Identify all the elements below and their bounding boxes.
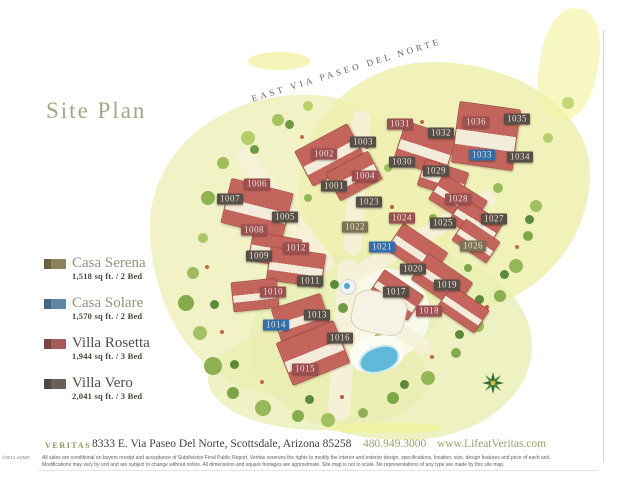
lot-label-1035: 1035	[504, 114, 530, 125]
legend-item: Villa Vero 2,041 sq ft. / 3 Bed	[44, 375, 174, 401]
legend-item: Villa Rosetta 1,944 sq ft. / 3 Bed	[44, 335, 174, 361]
lot-label-1017: 1017	[383, 287, 409, 298]
lot-label-1021: 1021	[369, 242, 395, 253]
lot-label-1033: 1033	[469, 150, 495, 161]
copyright-text: ©2012 ADMR	[2, 455, 40, 460]
page-title: Site Plan	[46, 98, 146, 124]
lot-label-1034: 1034	[507, 152, 533, 163]
lot-label-1008: 1008	[241, 225, 267, 236]
lot-number: 1012	[286, 243, 306, 253]
lot-number: 1004	[355, 171, 375, 181]
lot-number: 1005	[275, 212, 295, 222]
lot-number: 1017	[386, 287, 406, 297]
lot-label-1010: 1010	[260, 287, 286, 298]
lot-number: 1034	[510, 152, 530, 162]
legend-model-name: Casa Solare	[72, 295, 174, 311]
street-label: EAST VIA PASEO DEL NORTE	[250, 42, 421, 103]
lot-number: 1003	[353, 137, 373, 147]
lot-number: 1035	[507, 114, 527, 124]
lot-label-1007: 1007	[217, 194, 243, 205]
lot-label-1030: 1030	[389, 157, 415, 168]
lot-number: 1033	[472, 150, 492, 160]
lot-number: 1020	[403, 264, 423, 274]
veritas-logo: VERITAS	[45, 441, 91, 450]
lot-label-1002: 1002	[311, 149, 337, 160]
legend-model-name: Casa Serena	[72, 255, 174, 271]
lot-label-1004: 1004	[352, 171, 378, 182]
lot-number: 1019	[437, 280, 457, 290]
site-plan-page: 1001 1002 1003 1004 1005 1006 1007 1008 …	[0, 0, 621, 480]
lot-label-1024: 1024	[389, 213, 415, 224]
lot-number: 1018	[419, 306, 439, 316]
disclaimer-text: All sales are conditional on buyers rece…	[42, 455, 564, 468]
legend-item: Casa Serena 1,518 sq ft. / 2 Bed	[44, 255, 174, 281]
lot-number: 1009	[249, 251, 269, 261]
lot-number: 1006	[247, 179, 267, 189]
watercolor-wash	[248, 52, 310, 70]
lot-label-1013: 1013	[304, 310, 330, 321]
lot-number: 1024	[392, 213, 412, 223]
lot-label-1028: 1028	[445, 194, 471, 205]
lot-label-1025: 1025	[430, 218, 456, 229]
legend-model-name: Villa Rosetta	[72, 335, 174, 351]
lot-label-1023: 1023	[356, 197, 382, 208]
legend-model-details: 1,570 sq ft. / 2 Bed	[72, 311, 174, 321]
legend-color-swatch	[44, 379, 66, 389]
lot-number: 1030	[392, 157, 412, 167]
lot-label-1020: 1020	[400, 264, 426, 275]
lot-label-1029: 1029	[423, 166, 449, 177]
lot-label-1015: 1015	[292, 364, 318, 375]
lot-number: 1023	[359, 197, 379, 207]
footer-address: 8333 E. Via Paseo Del Norte, Scottsdale,…	[92, 438, 351, 450]
watercolor-wash	[330, 423, 442, 433]
lot-label-1031: 1031	[387, 119, 413, 130]
lot-number: 1011	[300, 276, 320, 286]
scan-edge-line	[603, 30, 604, 462]
compass-icon	[482, 372, 504, 394]
lot-label-1027: 1027	[481, 214, 507, 225]
legend-item: Casa Solare 1,570 sq ft. / 2 Bed	[44, 295, 174, 321]
watercolor-wash	[531, 4, 608, 124]
lot-label-1012: 1012	[283, 243, 309, 254]
flower-accents	[0, 0, 4, 4]
lot-label-1009: 1009	[246, 251, 272, 262]
lot-number: 1027	[484, 214, 504, 224]
lot-label-1006: 1006	[244, 179, 270, 190]
legend-model-name: Villa Vero	[72, 375, 174, 391]
footer-website[interactable]: www.LifeatVeritas.com	[437, 438, 546, 450]
lot-label-1011: 1011	[297, 276, 323, 287]
lot-number: 1032	[431, 128, 451, 138]
legend-model-details: 1,944 sq ft. / 3 Bed	[72, 351, 174, 361]
lot-number: 1028	[448, 194, 468, 204]
lot-number: 1025	[433, 218, 453, 228]
legend-model-details: 1,518 sq ft. / 2 Bed	[72, 271, 174, 281]
legend-color-swatch	[44, 339, 66, 349]
lot-number: 1016	[330, 333, 350, 343]
lot-number: 1015	[295, 364, 315, 374]
lot-number: 1008	[244, 225, 264, 235]
lot-label-1026: 1026	[460, 241, 486, 252]
legend-color-swatch	[44, 299, 66, 309]
lot-label-1032: 1032	[428, 128, 454, 139]
lot-number: 1031	[390, 119, 410, 129]
lot-number: 1026	[463, 241, 483, 251]
lot-number: 1010	[263, 287, 283, 297]
lot-label-1036: 1036	[463, 117, 489, 128]
lot-label-1019: 1019	[434, 280, 460, 291]
legend: Casa Serena 1,518 sq ft. / 2 Bed Casa So…	[44, 255, 174, 415]
lot-number: 1002	[314, 149, 334, 159]
scan-edge-line	[38, 470, 598, 471]
legend-color-swatch	[44, 259, 66, 269]
lot-label-1016: 1016	[327, 333, 353, 344]
lot-label-1001: 1001	[321, 181, 347, 192]
lot-label-1022: 1022	[342, 222, 368, 233]
lot-number: 1007	[220, 194, 240, 204]
lot-label-1003: 1003	[350, 137, 376, 148]
fountain	[340, 279, 356, 295]
lot-number: 1001	[324, 181, 344, 191]
lot-number: 1036	[466, 117, 486, 127]
lot-number: 1021	[372, 242, 392, 252]
lot-label-1005: 1005	[272, 212, 298, 223]
footer-phone[interactable]: 480.949.3000	[363, 438, 426, 450]
lot-label-1018: 1018	[416, 306, 442, 317]
lot-number: 1014	[266, 320, 286, 330]
lot-label-1014: 1014	[263, 320, 289, 331]
lot-number: 1022	[345, 222, 365, 232]
lot-number: 1013	[307, 310, 327, 320]
legend-model-details: 2,041 sq ft. / 3 Bed	[72, 391, 174, 401]
lot-number: 1029	[426, 166, 446, 176]
